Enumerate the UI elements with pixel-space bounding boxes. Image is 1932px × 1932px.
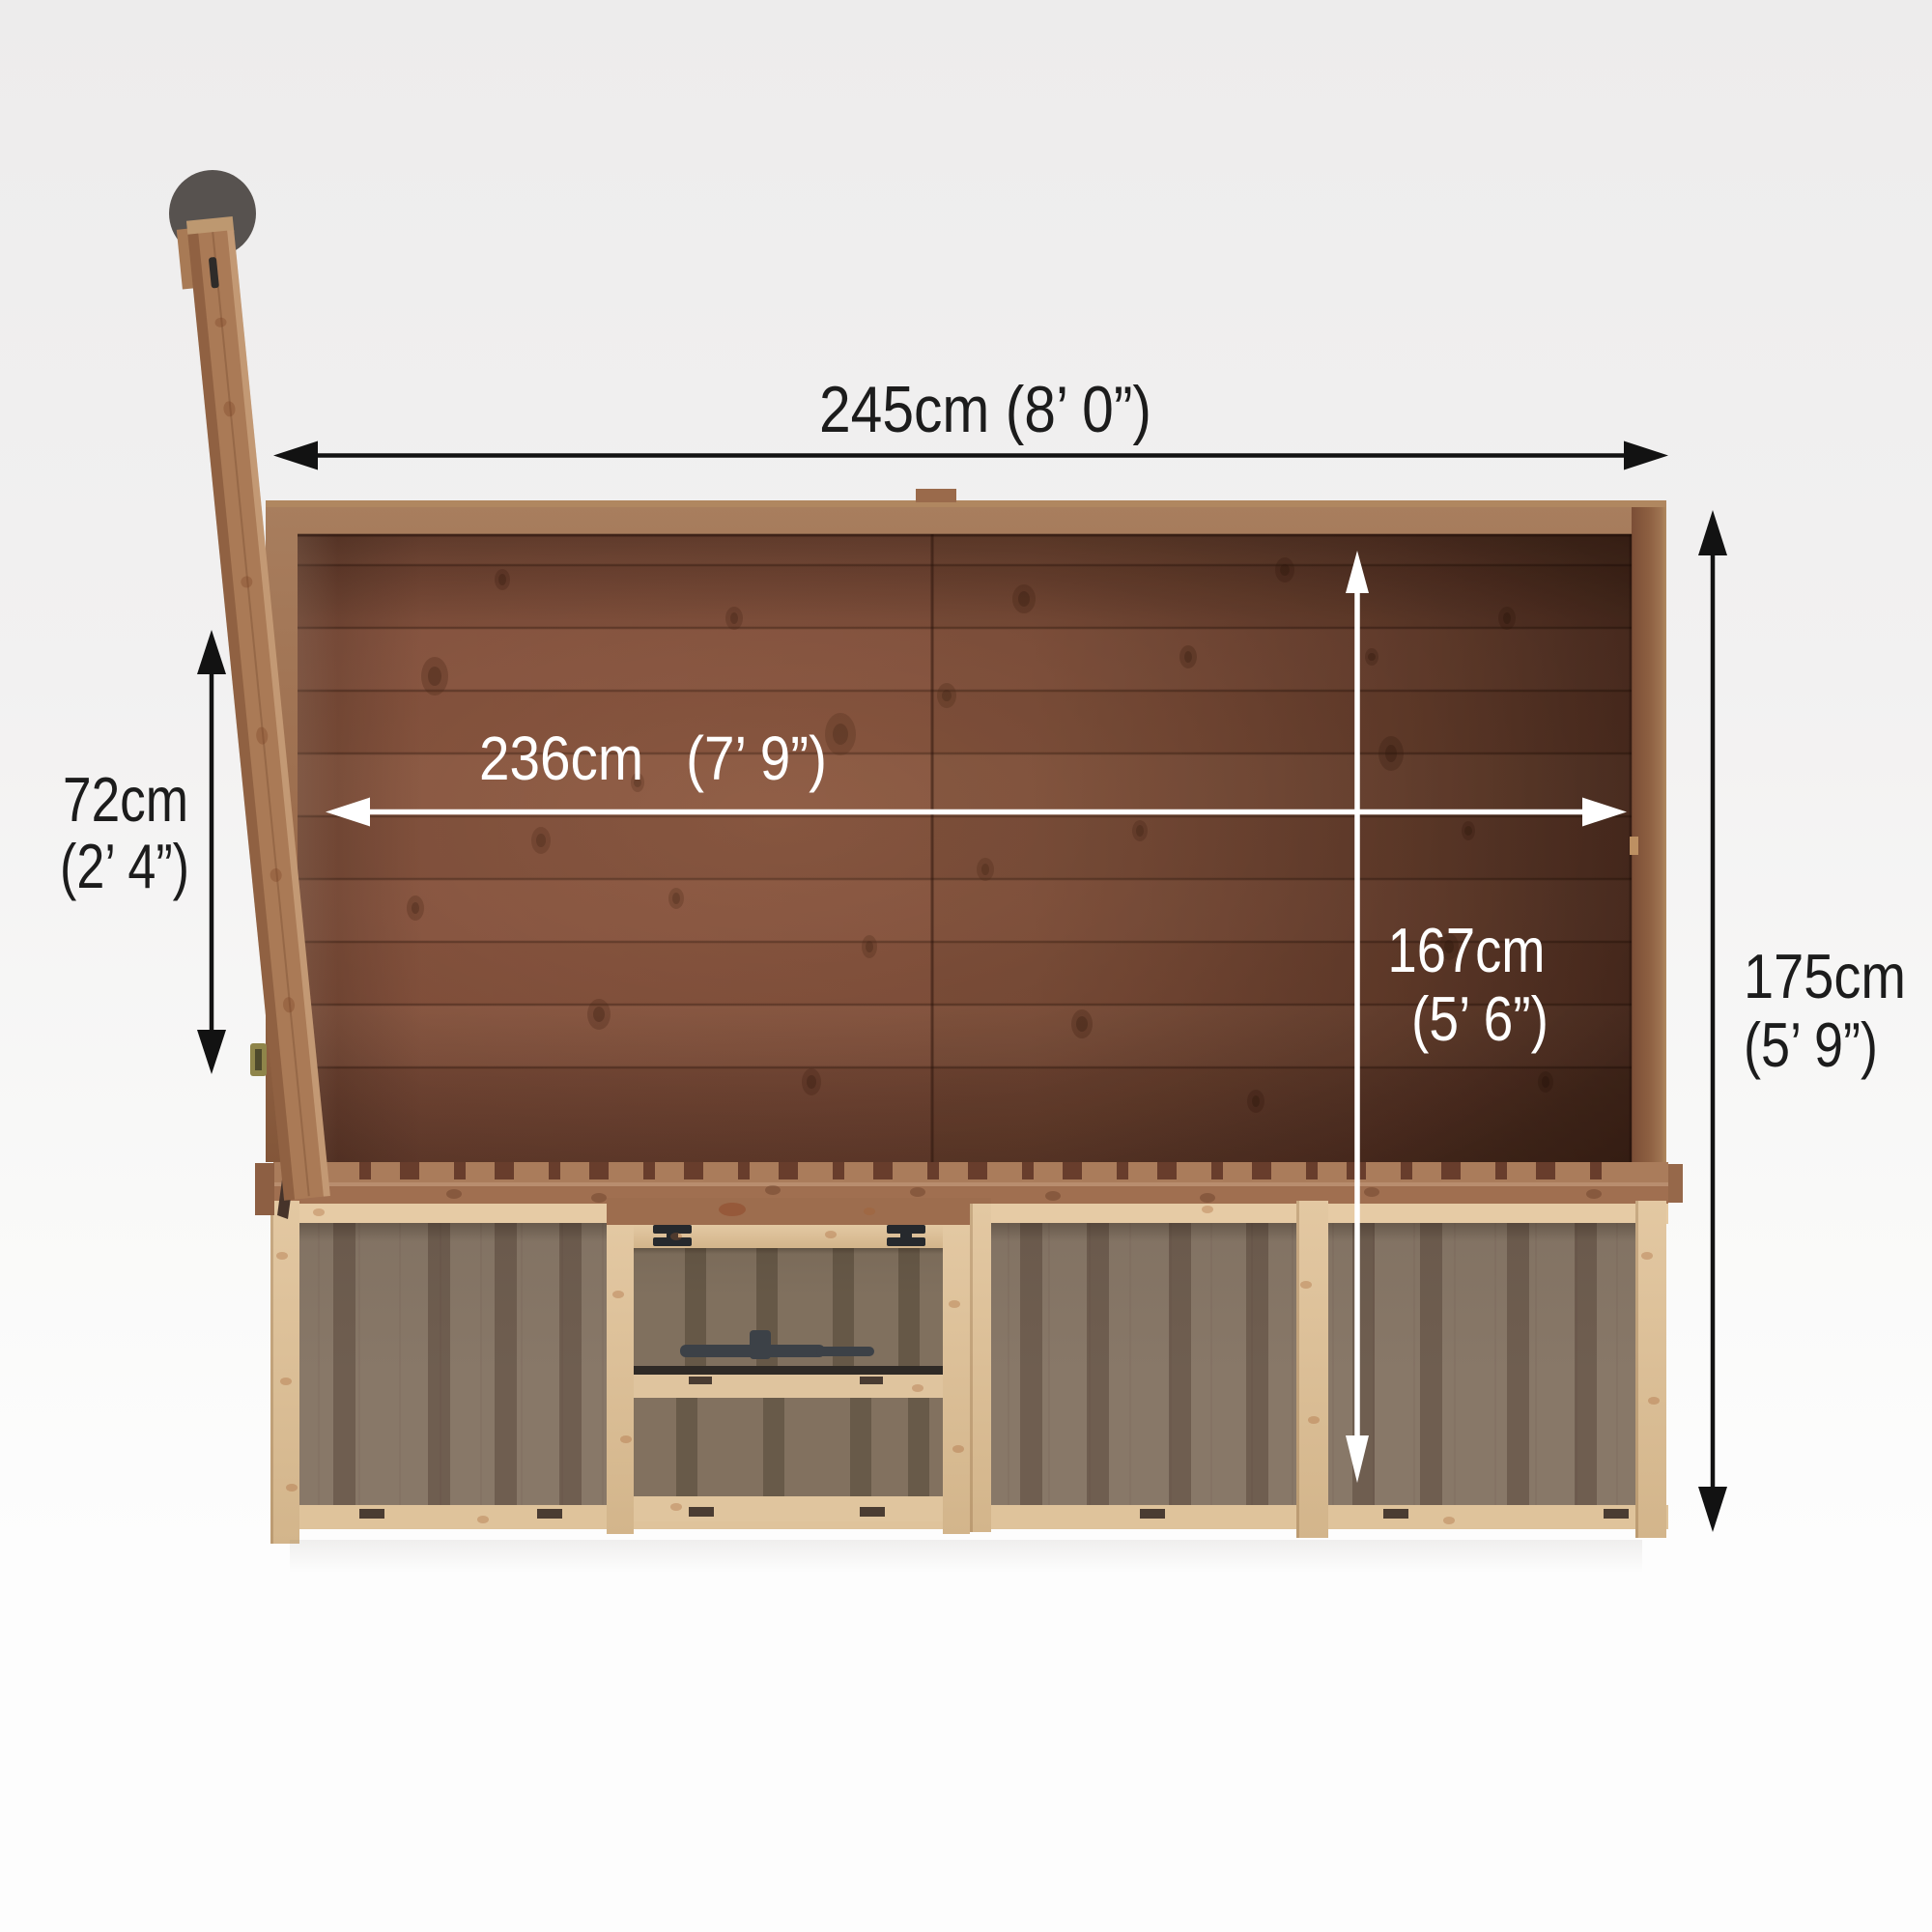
svg-text:245cm (8’ 0”): 245cm (8’ 0”)	[819, 373, 1151, 446]
svg-text:236cm (7’ 9”): 236cm (7’ 9”)	[479, 724, 827, 793]
svg-text:(5’ 9”): (5’ 9”)	[1744, 1009, 1878, 1080]
svg-text:167cm: 167cm	[1388, 915, 1546, 985]
svg-text:(5’ 6”): (5’ 6”)	[1411, 983, 1548, 1054]
svg-text:175cm: 175cm	[1744, 941, 1906, 1011]
svg-text:(2’ 4”): (2’ 4”)	[60, 831, 189, 901]
svg-text:72cm: 72cm	[63, 764, 188, 835]
